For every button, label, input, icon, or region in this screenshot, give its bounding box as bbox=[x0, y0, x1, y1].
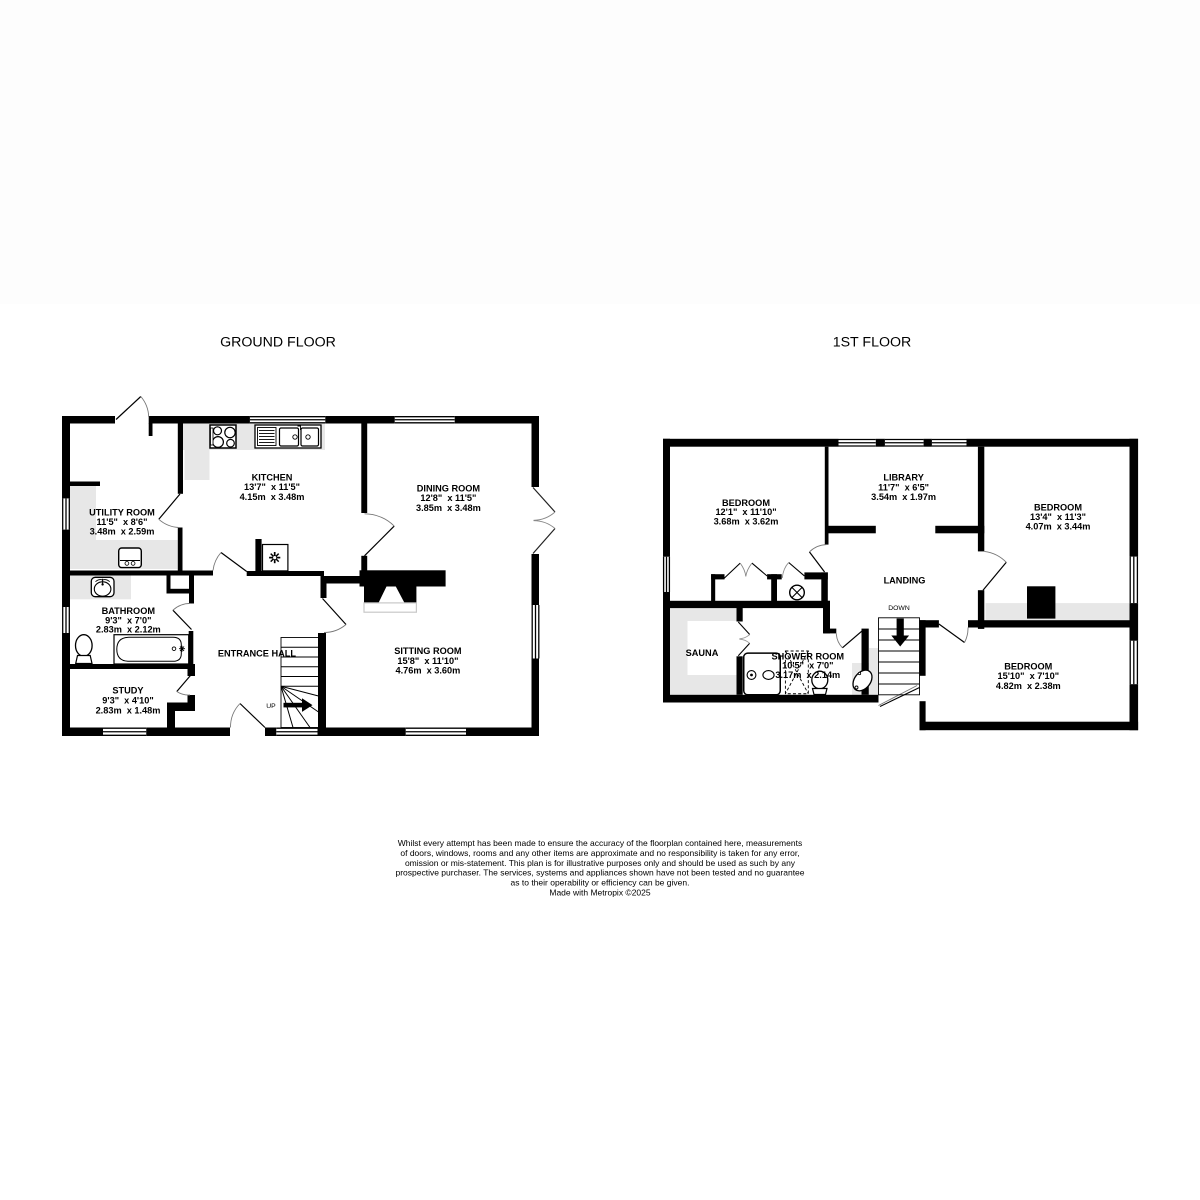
svg-text:Made with Metropix ©2025: Made with Metropix ©2025 bbox=[549, 888, 651, 898]
svg-text:3.68m x 3.62m: 3.68m x 3.62m bbox=[714, 517, 779, 527]
svg-text:4.15m x 3.48m: 4.15m x 3.48m bbox=[240, 492, 305, 502]
svg-text:1ST FLOOR: 1ST FLOOR bbox=[833, 335, 912, 351]
svg-text:GROUND FLOOR: GROUND FLOOR bbox=[220, 335, 336, 351]
svg-text:DOWN: DOWN bbox=[888, 605, 910, 612]
svg-text:KITCHEN: KITCHEN bbox=[252, 472, 293, 482]
svg-text:LIBRARY: LIBRARY bbox=[883, 473, 924, 483]
svg-text:11'7" x 6'5": 11'7" x 6'5" bbox=[878, 482, 929, 492]
svg-text:BEDROOM: BEDROOM bbox=[1034, 502, 1082, 512]
svg-text:3.54m x 1.97m: 3.54m x 1.97m bbox=[871, 492, 936, 502]
svg-text:3.17m x 2.14m: 3.17m x 2.14m bbox=[775, 670, 840, 680]
svg-text:DINING ROOM: DINING ROOM bbox=[417, 483, 481, 493]
svg-text:omission or mis-statement. Thi: omission or mis-statement. This plan is … bbox=[405, 858, 796, 868]
svg-text:ENTRANCE HALL: ENTRANCE HALL bbox=[218, 648, 296, 658]
svg-text:SAUNA: SAUNA bbox=[686, 648, 719, 658]
svg-text:UP: UP bbox=[266, 703, 276, 710]
svg-text:15'8" x 11'10": 15'8" x 11'10" bbox=[397, 656, 458, 666]
svg-text:LANDING: LANDING bbox=[884, 575, 926, 585]
svg-text:15'10" x 7'10": 15'10" x 7'10" bbox=[997, 671, 1059, 681]
svg-text:prospective purchaser. The ser: prospective purchaser. The services, sys… bbox=[395, 868, 804, 878]
svg-text:Whilst every attempt has been: Whilst every attempt has been made to en… bbox=[398, 838, 802, 848]
svg-text:2.83m x 2.12m: 2.83m x 2.12m bbox=[96, 625, 161, 635]
svg-text:4.76m x 3.60m: 4.76m x 3.60m bbox=[395, 665, 460, 675]
svg-text:4.82m x 2.38m: 4.82m x 2.38m bbox=[996, 681, 1061, 691]
svg-text:of doors, windows, rooms and a: of doors, windows, rooms and any other i… bbox=[400, 848, 799, 858]
svg-text:BEDROOM: BEDROOM bbox=[1004, 662, 1052, 672]
svg-text:SITTING ROOM: SITTING ROOM bbox=[394, 646, 462, 656]
svg-text:STUDY: STUDY bbox=[112, 685, 143, 695]
svg-text:4.07m x 3.44m: 4.07m x 3.44m bbox=[1026, 522, 1091, 532]
svg-text:as to their operability or eff: as to their operability or efficiency ca… bbox=[511, 878, 690, 888]
svg-text:13'4" x 11'3": 13'4" x 11'3" bbox=[1030, 512, 1086, 522]
svg-text:13'7" x 11'5": 13'7" x 11'5" bbox=[244, 482, 300, 492]
svg-text:12'8" x 11'5": 12'8" x 11'5" bbox=[420, 493, 476, 503]
svg-text:3.48m x 2.59m: 3.48m x 2.59m bbox=[90, 526, 155, 536]
svg-text:9'3" x 4'10": 9'3" x 4'10" bbox=[102, 696, 153, 706]
svg-text:3.85m x 3.48m: 3.85m x 3.48m bbox=[416, 503, 481, 513]
svg-text:2.83m x 1.48m: 2.83m x 1.48m bbox=[96, 706, 161, 716]
